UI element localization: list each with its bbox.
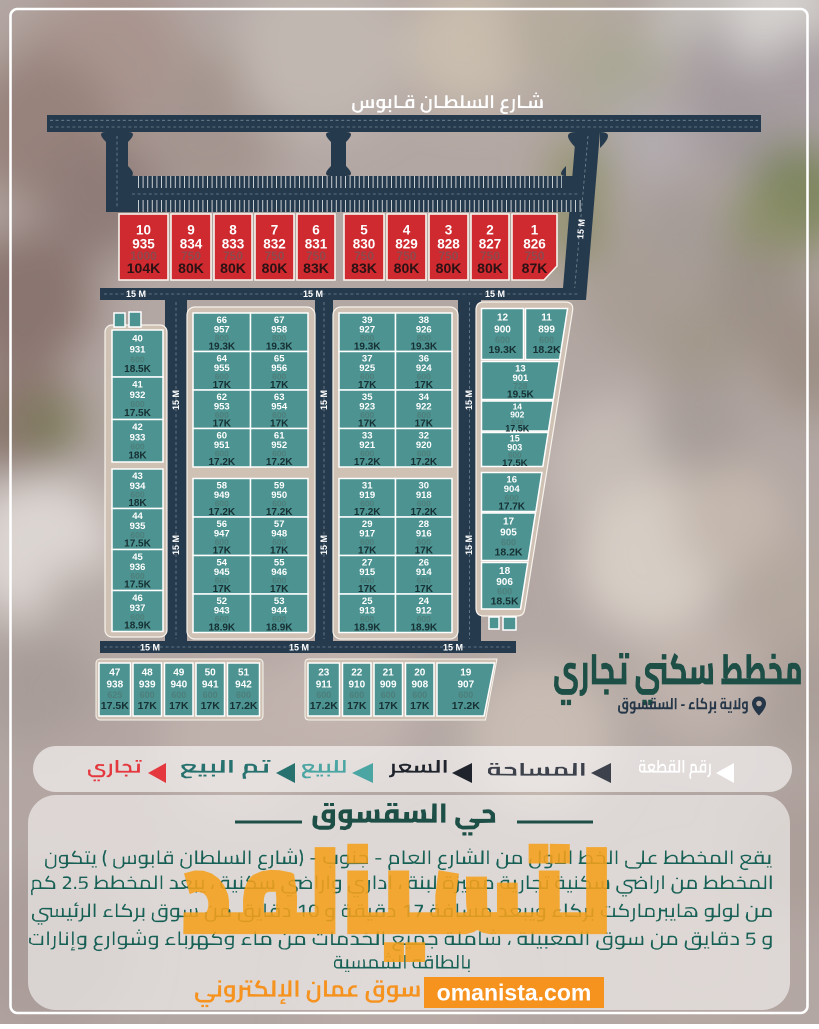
svg-text:80K: 80K (436, 260, 462, 276)
svg-text:15 M: 15 M (140, 643, 160, 653)
svg-text:17.5K: 17.5K (502, 458, 527, 469)
svg-text:22: 22 (351, 668, 363, 679)
svg-text:80K: 80K (394, 260, 420, 276)
svg-text:600: 600 (236, 690, 251, 700)
svg-text:17.5K: 17.5K (124, 408, 151, 419)
svg-text:600: 600 (412, 690, 427, 700)
svg-text:49: 49 (173, 668, 185, 679)
svg-text:80K: 80K (262, 260, 288, 276)
svg-text:80K: 80K (178, 260, 204, 276)
svg-text:15 M: 15 M (303, 289, 323, 299)
svg-text:19: 19 (460, 668, 472, 679)
svg-text:17K: 17K (138, 700, 158, 712)
svg-text:11: 11 (541, 313, 552, 324)
svg-text:104K: 104K (127, 260, 160, 276)
svg-text:15 M: 15 M (171, 390, 181, 410)
svg-text:17.2K: 17.2K (208, 457, 235, 468)
svg-text:900: 900 (494, 324, 511, 335)
svg-text:600: 600 (140, 690, 155, 700)
svg-text:83K: 83K (351, 260, 377, 276)
svg-text:18.9K: 18.9K (208, 623, 235, 634)
svg-text:40: 40 (132, 334, 143, 345)
svg-text:600: 600 (130, 354, 144, 364)
svg-text:15 M: 15 M (126, 289, 146, 299)
svg-text:15 M: 15 M (485, 289, 505, 299)
svg-text:18.2K: 18.2K (533, 344, 561, 356)
svg-text:51: 51 (238, 668, 250, 679)
svg-text:17.2K: 17.2K (452, 700, 480, 712)
svg-text:21: 21 (383, 668, 395, 679)
svg-text:87K: 87K (522, 260, 548, 276)
svg-text:3: 3 (445, 223, 453, 238)
svg-text:939: 939 (139, 680, 156, 691)
svg-text:80K: 80K (477, 260, 503, 276)
svg-text:600: 600 (458, 690, 473, 700)
svg-text:18.9K: 18.9K (354, 623, 381, 634)
svg-text:23: 23 (318, 668, 330, 679)
svg-text:7: 7 (271, 223, 279, 238)
svg-text:17K: 17K (410, 700, 430, 712)
svg-text:18.9K: 18.9K (410, 623, 437, 634)
svg-text:17.2K: 17.2K (266, 457, 293, 468)
svg-text:15 M: 15 M (443, 643, 463, 653)
svg-text:17.2K: 17.2K (410, 457, 437, 468)
svg-text:80K: 80K (220, 260, 246, 276)
svg-text:18.2K: 18.2K (494, 547, 522, 559)
svg-text:17K: 17K (379, 700, 399, 712)
svg-text:911: 911 (316, 680, 333, 691)
svg-text:942: 942 (235, 680, 252, 691)
svg-text:17: 17 (503, 517, 515, 528)
svg-text:625: 625 (107, 690, 122, 700)
svg-text:910: 910 (348, 680, 365, 691)
svg-text:5: 5 (360, 223, 368, 238)
svg-text:17K: 17K (347, 700, 367, 712)
svg-text:8: 8 (229, 223, 237, 238)
svg-text:899: 899 (538, 324, 555, 335)
svg-text:18K: 18K (128, 498, 147, 509)
svg-text:938: 938 (106, 680, 123, 691)
svg-text:17.5K: 17.5K (124, 539, 151, 550)
svg-text:18.9K: 18.9K (124, 621, 151, 632)
svg-text:1: 1 (531, 223, 539, 238)
svg-text:19.5K: 19.5K (507, 390, 534, 401)
svg-text:10: 10 (136, 223, 151, 238)
svg-text:47: 47 (109, 668, 121, 679)
svg-text:6: 6 (312, 223, 320, 238)
svg-text:83K: 83K (303, 260, 329, 276)
svg-text:17K: 17K (169, 700, 189, 712)
svg-text:9: 9 (187, 223, 195, 238)
svg-text:18.9K: 18.9K (266, 623, 293, 634)
svg-text:941: 941 (202, 680, 219, 691)
svg-text:2: 2 (486, 223, 494, 238)
svg-text:600: 600 (171, 690, 186, 700)
svg-text:600: 600 (349, 690, 364, 700)
svg-text:18K: 18K (128, 451, 147, 462)
svg-text:17.2K: 17.2K (310, 700, 338, 712)
svg-text:15 M: 15 M (289, 643, 309, 653)
svg-text:17.2K: 17.2K (229, 700, 257, 712)
svg-text:15 M: 15 M (575, 219, 587, 240)
svg-text:908: 908 (411, 680, 428, 691)
svg-text:15 M: 15 M (464, 390, 474, 410)
svg-text:600: 600 (316, 690, 331, 700)
svg-text:50: 50 (205, 668, 217, 679)
svg-text:17K: 17K (201, 700, 221, 712)
svg-text:15 M: 15 M (319, 535, 329, 555)
svg-text:17.5K: 17.5K (124, 580, 151, 591)
svg-text:600: 600 (203, 690, 218, 700)
svg-text:15 M: 15 M (319, 390, 329, 410)
svg-text:19.3K: 19.3K (488, 344, 516, 356)
svg-text:15 M: 15 M (171, 535, 181, 555)
svg-text:17.5K: 17.5K (101, 700, 129, 712)
svg-text:18.5K: 18.5K (491, 595, 519, 607)
svg-text:12: 12 (497, 313, 509, 324)
svg-text:20: 20 (414, 668, 426, 679)
svg-text:17.2K: 17.2K (354, 457, 381, 468)
svg-text:940: 940 (170, 680, 187, 691)
svg-text:907: 907 (457, 680, 474, 691)
svg-text:18: 18 (499, 566, 511, 577)
svg-text:4: 4 (403, 223, 411, 238)
svg-text:48: 48 (142, 668, 154, 679)
svg-text:17.7K: 17.7K (498, 501, 525, 512)
svg-text:omanista.com: omanista.com (437, 980, 592, 1006)
svg-text:18.5K: 18.5K (124, 364, 151, 375)
svg-text:909: 909 (380, 680, 397, 691)
svg-text:15 M: 15 M (464, 535, 474, 555)
svg-text:600: 600 (381, 690, 396, 700)
